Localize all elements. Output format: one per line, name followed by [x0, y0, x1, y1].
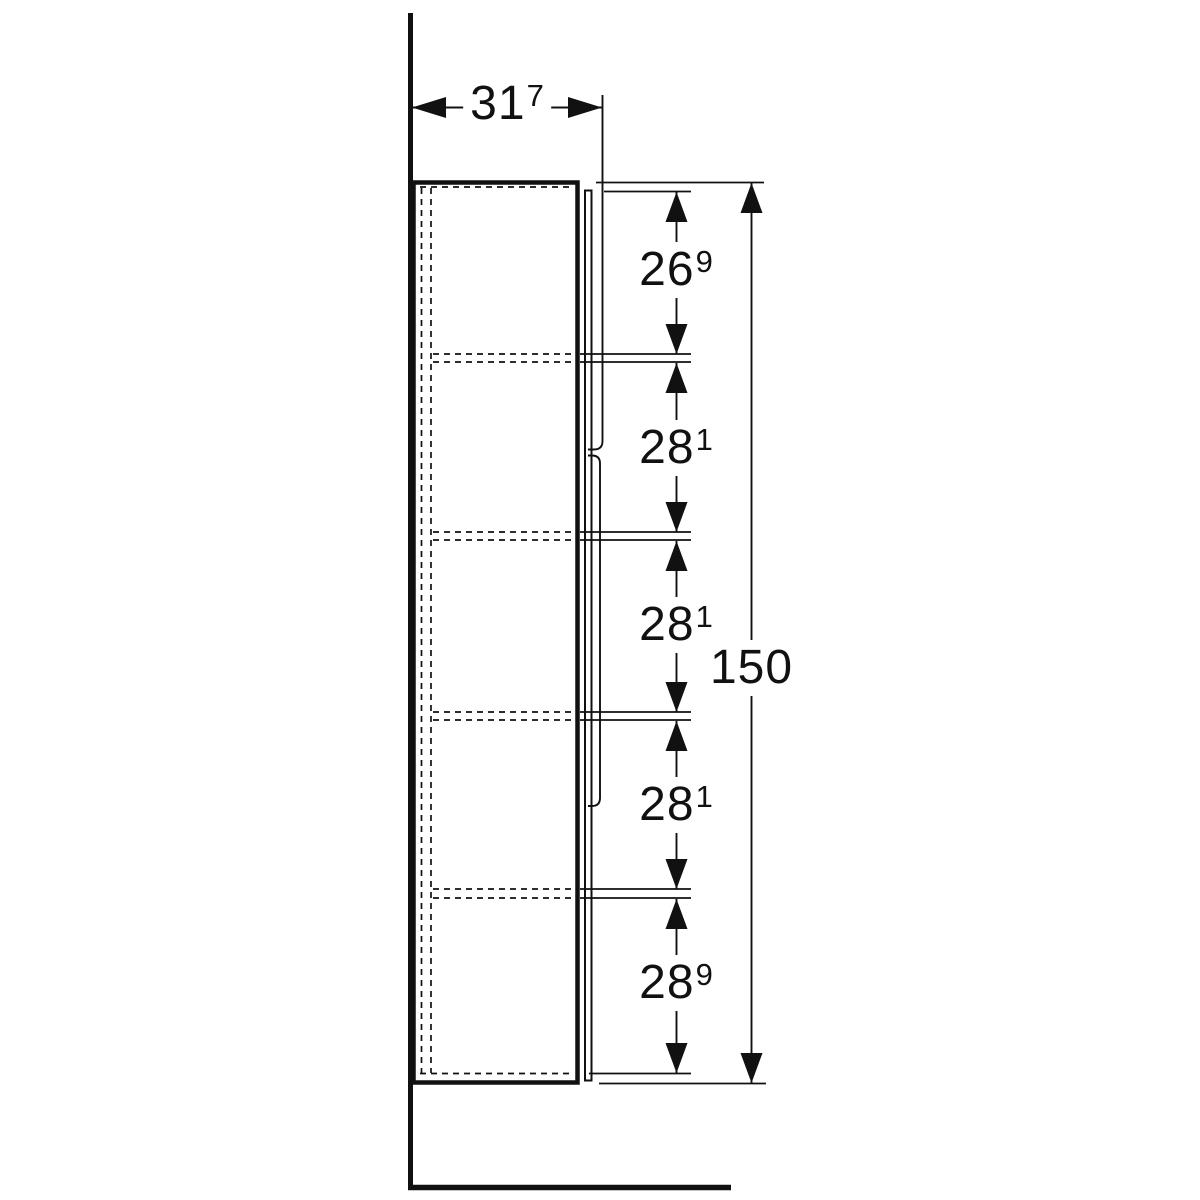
door-panel: [585, 191, 592, 1081]
segment-5-arrow-up: [666, 899, 688, 929]
segment-1-label: 269: [632, 242, 720, 298]
segment-3-arrow-down: [666, 682, 688, 712]
depth-value: 31: [470, 77, 525, 130]
segment-1-arrow-up: [666, 192, 688, 222]
segment-2-arrow-down: [666, 502, 688, 532]
depth-sup: 7: [527, 78, 544, 113]
segment-4-value: 28: [639, 778, 694, 831]
segment-4-arrow-up: [666, 721, 688, 751]
segment-4-sup: 1: [696, 779, 713, 814]
segment-1-value: 26: [639, 243, 694, 296]
depth-arrow-right: [568, 97, 602, 118]
segment-2-arrow-up: [666, 363, 688, 393]
depth-dimension-label: 317: [463, 76, 551, 132]
drawing-linework: [0, 0, 1200, 1200]
segment-3-sup: 1: [696, 599, 713, 634]
cabinet-outline: [414, 183, 578, 1083]
overall-height-value: 150: [710, 641, 793, 694]
segment-5-sup: 9: [696, 957, 713, 992]
overall-height-dimension: [741, 183, 763, 1083]
segment-2-sup: 1: [696, 422, 713, 457]
segment-5-label: 289: [632, 955, 720, 1011]
drawing-canvas: 317 269 281 281 281 289 150: [0, 0, 1200, 1200]
segment-4-arrow-down: [666, 859, 688, 889]
segment-5-value: 28: [639, 956, 694, 1009]
segment-3-arrow-up: [666, 541, 688, 571]
overall-height-arrow-up: [741, 183, 763, 213]
segment-2-label: 281: [632, 420, 720, 476]
overall-height-label: 150: [703, 640, 801, 696]
segment-2-value: 28: [639, 421, 694, 474]
depth-arrow-left: [412, 97, 446, 118]
segment-1-sup: 9: [696, 244, 713, 279]
segment-5-arrow-down: [666, 1043, 688, 1073]
segment-1-arrow-down: [666, 324, 688, 354]
segment-4-label: 281: [632, 777, 720, 833]
segment-3-value: 28: [639, 598, 694, 651]
overall-height-arrow-down: [741, 1053, 763, 1083]
